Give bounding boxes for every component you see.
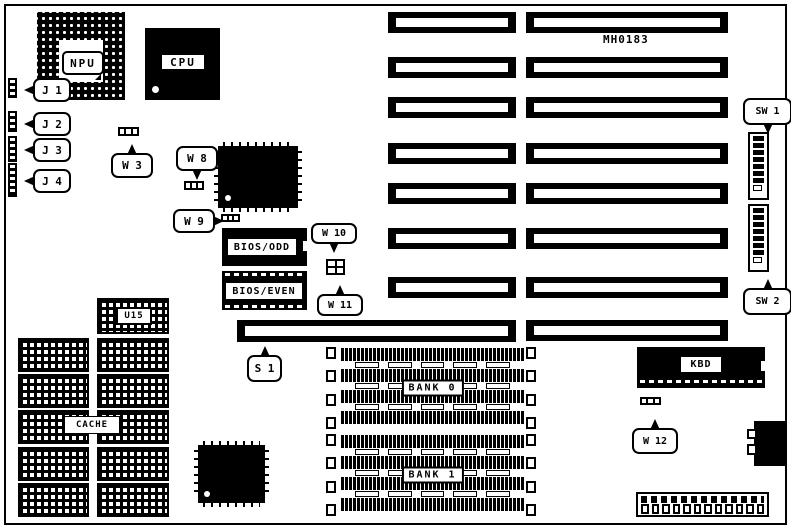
expansion-slot xyxy=(526,320,728,341)
power-connector-cells xyxy=(638,504,767,514)
u15-label: U15 xyxy=(116,307,152,325)
expansion-slot xyxy=(526,12,728,33)
sw2-dip-switch xyxy=(748,204,769,272)
cache-chip xyxy=(18,483,89,517)
callout-tail xyxy=(335,285,345,296)
expansion-slot xyxy=(526,277,728,298)
simm-socket xyxy=(341,411,524,424)
w9-callout-text: W 9 xyxy=(184,215,204,228)
s1-slot xyxy=(237,320,516,342)
w12-jumper xyxy=(640,397,661,405)
j4-callout-text: J 4 xyxy=(42,175,62,188)
s1-callout-text: S 1 xyxy=(255,362,275,375)
cache-chip xyxy=(97,374,169,408)
bios-odd-label: BIOS/ODD xyxy=(228,239,296,255)
callout-tail xyxy=(127,144,137,155)
expansion-slot xyxy=(388,228,516,249)
din-pin-port xyxy=(747,429,757,439)
bank-end-bracket xyxy=(526,346,539,430)
kbd-dash xyxy=(640,380,762,383)
w10-w11-jumper-block xyxy=(326,259,345,275)
j3-callout-text: J 3 xyxy=(42,144,62,157)
callout-tail xyxy=(24,145,35,155)
simm-socket xyxy=(341,348,524,361)
simm-latches xyxy=(355,449,510,455)
callout-tail xyxy=(329,242,339,253)
callout-tail xyxy=(650,419,660,430)
simm-latches xyxy=(355,404,510,410)
bios-even-dash xyxy=(225,273,304,276)
cache-chip xyxy=(97,338,169,372)
cache-chip xyxy=(18,374,89,408)
qfp-pins xyxy=(194,450,198,498)
board-code-label: MH0183 xyxy=(603,33,649,46)
j2-callout: J 2 xyxy=(33,112,71,136)
callout-tail xyxy=(24,85,35,95)
j4-header xyxy=(8,163,17,197)
w10-callout-text: W 10 xyxy=(322,228,346,239)
sw1-dip-switch xyxy=(748,132,769,200)
din-pin-port xyxy=(747,444,757,455)
expansion-slot xyxy=(526,183,728,204)
callout-tail xyxy=(763,279,773,290)
npu-pin1-arrow-icon xyxy=(95,74,101,80)
power-connector xyxy=(636,492,769,517)
w9-callout: W 9 xyxy=(173,209,215,233)
bank-end-bracket xyxy=(326,346,339,430)
w12-callout: W 12 xyxy=(632,428,678,454)
callout-tail xyxy=(763,123,773,134)
simm-latches xyxy=(355,362,510,368)
bank-end-bracket xyxy=(526,433,539,517)
bios-odd-chip: BIOS/ODD xyxy=(222,228,307,266)
cache-chip xyxy=(97,447,169,481)
j3-header xyxy=(8,136,17,162)
w10-callout: W 10 xyxy=(311,223,357,244)
w12-callout-text: W 12 xyxy=(643,436,667,447)
w8-callout: W 8 xyxy=(176,146,218,171)
sw1-callout: SW 1 xyxy=(743,98,791,125)
qfp-chip-upper xyxy=(218,146,298,208)
w11-callout-text: W 11 xyxy=(328,300,352,311)
expansion-slot xyxy=(388,57,516,78)
kbd-chip: KBD xyxy=(637,347,765,388)
simm-bank-0: BANK 0 xyxy=(325,346,540,430)
j1-header xyxy=(8,78,17,98)
expansion-slot xyxy=(388,183,516,204)
qfp-orientation-dot xyxy=(225,195,231,201)
w3-callout-text: W 3 xyxy=(122,159,142,172)
bios-even-chip: BIOS/EVEN xyxy=(222,271,307,310)
qfp-pins xyxy=(223,142,293,146)
callout-tail xyxy=(192,169,202,180)
npu-chip-label: NPU xyxy=(62,51,104,75)
qfp-pins xyxy=(223,208,293,212)
callout-tail xyxy=(213,216,224,226)
expansion-slot xyxy=(388,143,516,164)
cache-label: CACHE xyxy=(64,416,120,434)
cache-chip xyxy=(18,338,89,372)
expansion-slot xyxy=(388,97,516,118)
sw2-callout-text: SW 2 xyxy=(755,296,779,307)
s1-callout: S 1 xyxy=(247,355,282,382)
qfp-chip-lower xyxy=(198,445,265,503)
expansion-slot xyxy=(526,97,728,118)
simm-socket xyxy=(341,435,524,448)
npu-socket-center: NPU xyxy=(59,40,103,82)
expansion-slot xyxy=(388,12,516,33)
callout-tail xyxy=(24,176,35,186)
bank0-label: BANK 0 xyxy=(401,380,463,397)
cache-chip xyxy=(97,483,169,517)
j2-callout-text: J 2 xyxy=(42,118,62,131)
bios-odd-notch xyxy=(303,241,309,251)
j1-callout-text: J 1 xyxy=(42,84,62,97)
w8-jumper xyxy=(184,181,204,190)
expansion-slot xyxy=(526,228,728,249)
qfp-pins xyxy=(203,441,260,445)
cpu-chip-label: CPU xyxy=(162,55,204,69)
bank-end-bracket xyxy=(326,433,339,517)
sw1-callout-text: SW 1 xyxy=(755,106,779,117)
w3-callout: W 3 xyxy=(111,153,153,178)
w3-jumper xyxy=(118,127,139,136)
cache-chip-u15: U15 xyxy=(97,298,169,334)
expansion-slot xyxy=(526,143,728,164)
bios-even-dash xyxy=(225,305,304,308)
cache-chip xyxy=(18,447,89,481)
j2-header xyxy=(8,111,17,132)
simm-socket xyxy=(341,498,524,511)
j1-callout: J 1 xyxy=(33,78,71,102)
keyboard-din-connector xyxy=(754,421,786,466)
bios-even-label: BIOS/EVEN xyxy=(226,283,302,299)
simm-latches xyxy=(355,491,510,497)
qfp-pins xyxy=(203,503,260,507)
qfp-pins xyxy=(298,151,302,203)
power-connector-pins xyxy=(641,496,764,503)
j4-callout: J 4 xyxy=(33,169,71,193)
motherboard-diagram: NPU CPU BIOS/ODD BIOS/EVEN xyxy=(0,0,791,529)
expansion-slot xyxy=(526,57,728,78)
expansion-slot xyxy=(388,277,516,298)
bank1-label: BANK 1 xyxy=(401,467,463,484)
simm-bank-1: BANK 1 xyxy=(325,433,540,517)
qfp-orientation-dot xyxy=(204,491,210,497)
w8-callout-text: W 8 xyxy=(187,152,207,165)
w11-callout: W 11 xyxy=(317,294,363,316)
cpu-orientation-dot xyxy=(152,86,159,93)
callout-tail xyxy=(24,119,35,129)
j3-callout: J 3 xyxy=(33,138,71,162)
kbd-notch xyxy=(761,361,767,371)
sw2-callout: SW 2 xyxy=(743,288,791,315)
kbd-label: KBD xyxy=(681,357,721,372)
cpu-chip: CPU xyxy=(145,28,220,100)
callout-tail xyxy=(260,346,270,357)
qfp-pins xyxy=(265,450,269,498)
